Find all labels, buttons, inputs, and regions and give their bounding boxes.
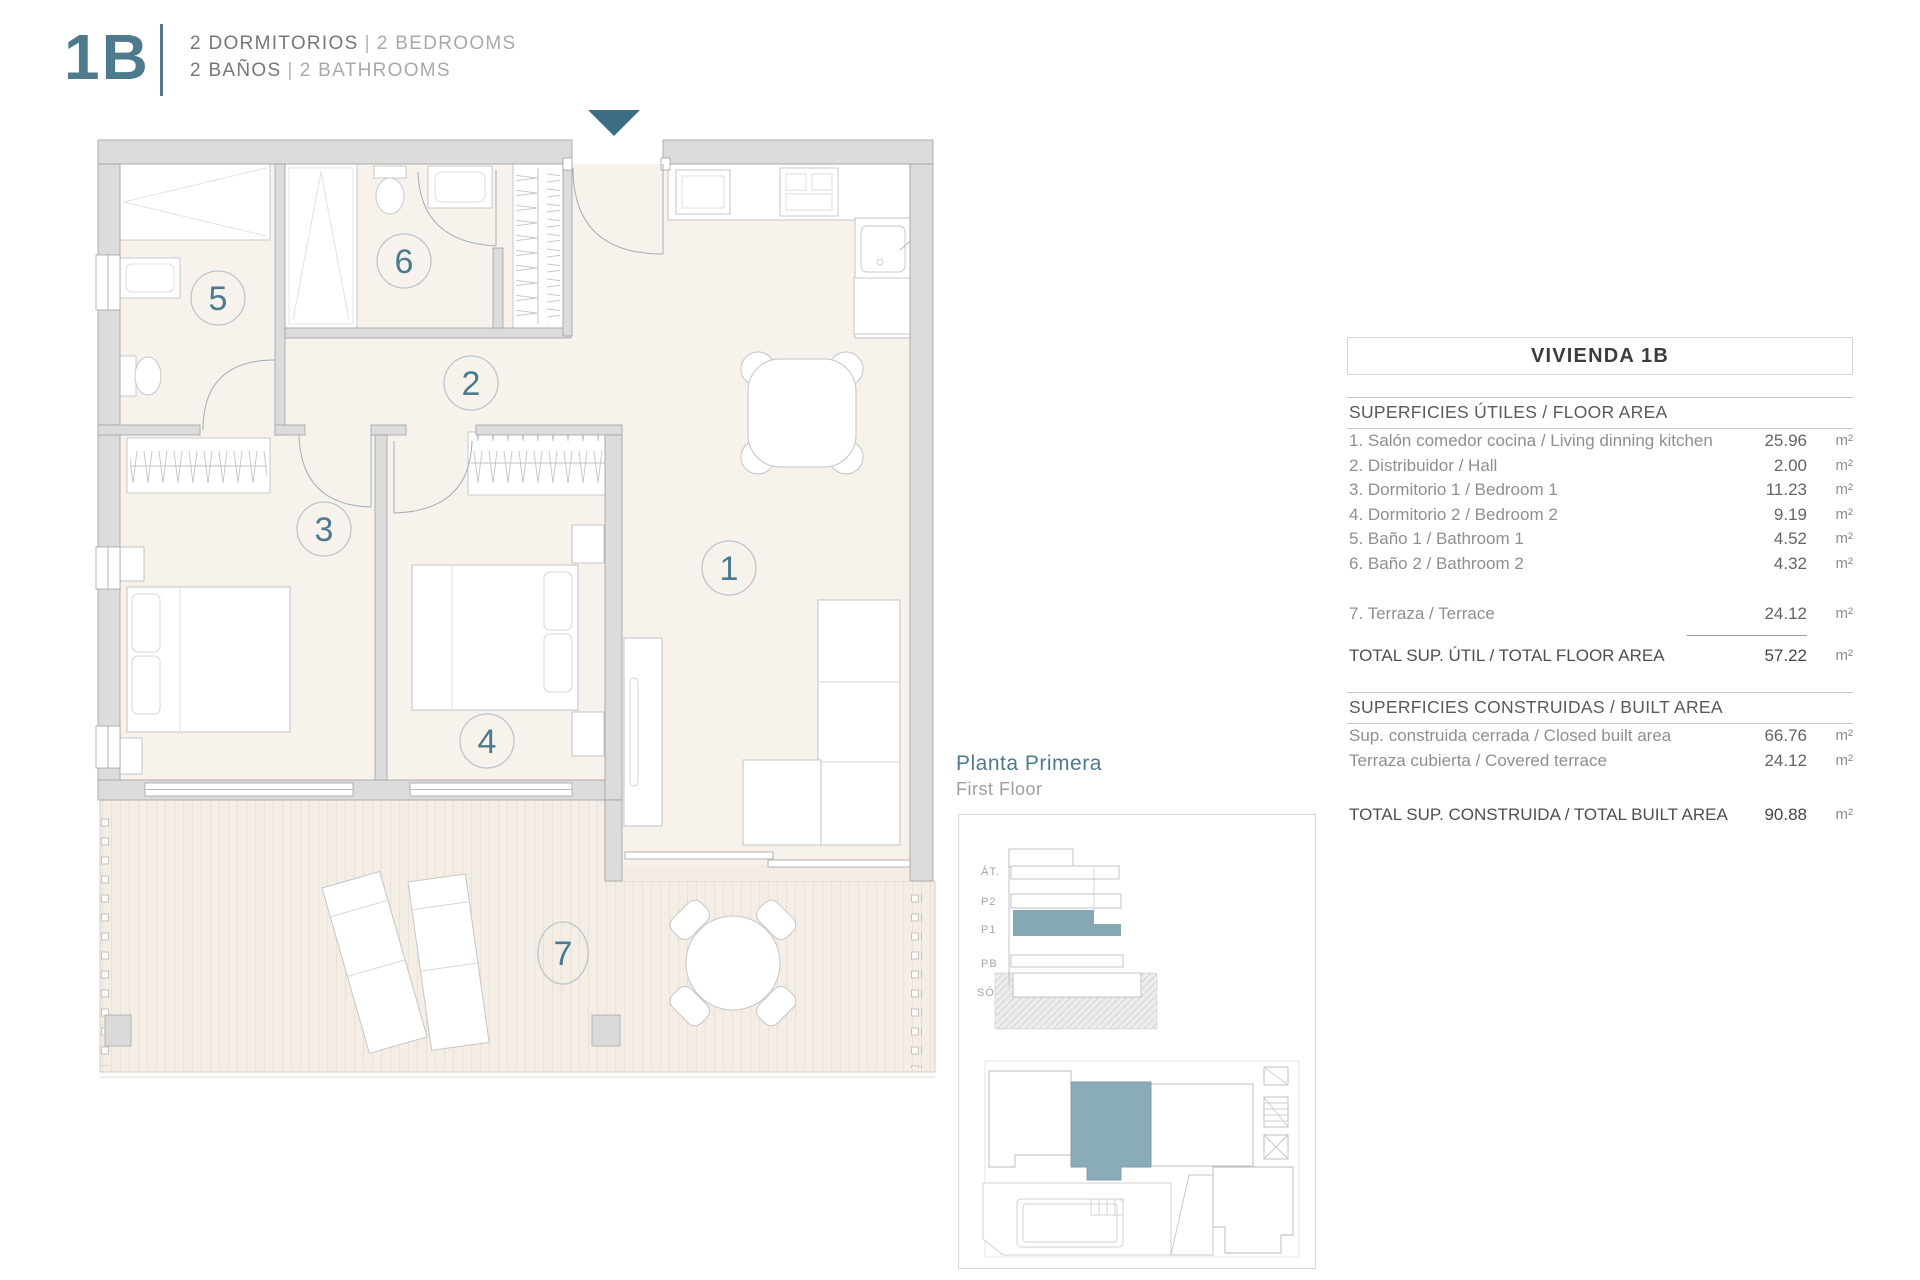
total-floor-row: TOTAL SUP. ÚTIL / TOTAL FLOOR AREA57.22m… (1347, 644, 1853, 669)
row-label: 6. Baño 2 / Bathroom 2 (1347, 552, 1737, 577)
separator: | (359, 33, 377, 54)
highlighted-unit (1071, 1082, 1151, 1180)
kitchen-cabinet (854, 278, 910, 334)
bathroom2-sink (428, 166, 492, 208)
separator: | (281, 60, 299, 81)
total-built-row: TOTAL SUP. CONSTRUIDA / TOTAL BUILT AREA… (1347, 803, 1853, 828)
floor-label-es: Planta Primera (956, 752, 1102, 776)
built-area-header: SUPERFICIES CONSTRUIDAS / BUILT AREA (1347, 693, 1853, 723)
row-unit: m² (1807, 454, 1853, 479)
bedroom2-wardrobe (468, 432, 610, 495)
row-value: 24.12 (1737, 602, 1807, 627)
table-row: 3. Dormitorio 1 / Bedroom 111.23m² (1347, 478, 1853, 503)
row-label: 7. Terraza / Terrace (1347, 602, 1737, 627)
svg-text:6: 6 (395, 243, 414, 281)
svg-text:PB: PB (981, 958, 998, 970)
row-unit: m² (1807, 552, 1853, 577)
bedrooms-line: 2 DORMITORIOS|2 BEDROOMS (190, 30, 517, 57)
row-label: 3. Dormitorio 1 / Bedroom 1 (1347, 478, 1737, 503)
location-diagram-box: ÁT. P2 P1 PB SÓT. (958, 814, 1316, 1269)
row-value: 4.52 (1737, 527, 1807, 552)
row-unit: m² (1807, 602, 1853, 627)
svg-text:3: 3 (315, 511, 334, 549)
location-diagram: ÁT. P2 P1 PB SÓT. (959, 815, 1315, 1268)
dining-table (741, 352, 863, 474)
row-unit: m² (1807, 644, 1853, 669)
header-subtitle: 2 DORMITORIOS|2 BEDROOMS 2 BAÑOS|2 BATHR… (190, 30, 517, 84)
sliding-door-pane (768, 860, 910, 867)
row-unit: m² (1807, 527, 1853, 552)
row-value: 66.76 (1737, 724, 1807, 749)
row-unit: m² (1807, 478, 1853, 503)
table-row: 1. Salón comedor cocina / Living dinning… (1347, 429, 1853, 454)
site-plan (983, 1061, 1299, 1257)
bathroom1-shower (120, 164, 270, 240)
tv-console (624, 638, 662, 826)
svg-text:2: 2 (462, 365, 481, 403)
row-value: 57.22 (1737, 644, 1807, 669)
entrance-arrow-icon (588, 110, 640, 136)
row-unit: m² (1807, 503, 1853, 528)
table-row: 4. Dormitorio 2 / Bedroom 29.19m² (1347, 503, 1853, 528)
table-row: Sup. construida cerrada / Closed built a… (1347, 724, 1853, 749)
bathrooms-en: 2 BATHROOMS (300, 60, 451, 81)
svg-text:1: 1 (720, 550, 739, 588)
row-value: 4.32 (1737, 552, 1807, 577)
row-label: 2. Distribuidor / Hall (1347, 454, 1737, 479)
row-label: 5. Baño 1 / Bathroom 1 (1347, 527, 1737, 552)
terrace-railing-right (911, 888, 922, 1068)
bathroom1-sink (120, 258, 180, 298)
header-divider (160, 24, 163, 96)
floor-label: Planta Primera First Floor (956, 752, 1102, 800)
floor-area-header: SUPERFICIES ÚTILES / FLOOR AREA (1347, 398, 1853, 428)
bathrooms-line: 2 BAÑOS|2 BATHROOMS (190, 57, 517, 84)
svg-text:ÁT.: ÁT. (981, 865, 1000, 878)
pool (1017, 1199, 1123, 1247)
svg-text:7: 7 (554, 935, 573, 973)
terrace-table (667, 897, 800, 1030)
bathroom2-toilet (374, 166, 406, 214)
row-value: 24.12 (1737, 749, 1807, 774)
row-label: TOTAL SUP. ÚTIL / TOTAL FLOOR AREA (1347, 644, 1737, 669)
floor-label-en: First Floor (956, 779, 1102, 800)
bathrooms-es: 2 BAÑOS (190, 60, 281, 81)
row-label: 1. Salón comedor cocina / Living dinning… (1347, 429, 1737, 454)
table-title: VIVIENDA 1B (1347, 337, 1853, 375)
row-value: 11.23 (1737, 478, 1807, 503)
row-unit: m² (1807, 724, 1853, 749)
elevator-icon (1264, 1135, 1288, 1159)
brochure-page: 1B 2 DORMITORIOS|2 BEDROOMS 2 BAÑOS|2 BA… (0, 0, 1920, 1280)
table-row-terrace: 7. Terraza / Terrace24.12m² (1347, 602, 1853, 627)
highlighted-floor (1013, 910, 1121, 936)
bedrooms-es: 2 DORMITORIOS (190, 33, 359, 54)
row-value: 9.19 (1737, 503, 1807, 528)
table-row: 2. Distribuidor / Hall2.00m² (1347, 454, 1853, 479)
threshold (622, 865, 910, 881)
row-value: 2.00 (1737, 454, 1807, 479)
area-table: VIVIENDA 1B SUPERFICIES ÚTILES / FLOOR A… (1347, 337, 1853, 828)
building-section: ÁT. P2 P1 PB SÓT. (977, 849, 1157, 1029)
row-unit: m² (1807, 803, 1853, 828)
svg-text:P1: P1 (981, 924, 996, 936)
unit-code: 1B (64, 20, 150, 94)
row-value: 90.88 (1737, 803, 1807, 828)
bedrooms-en: 2 BEDROOMS (377, 33, 517, 54)
bedroom1-wardrobe (127, 438, 270, 493)
table-row: 5. Baño 1 / Bathroom 14.52m² (1347, 527, 1853, 552)
floor-plan: 1 2 3 4 5 6 7 (80, 110, 940, 1085)
bathroom2-shower (285, 164, 357, 328)
row-label: Terraza cubierta / Covered terrace (1347, 749, 1737, 774)
terrace-pillar (592, 1015, 620, 1046)
row-unit: m² (1807, 749, 1853, 774)
svg-text:4: 4 (478, 723, 497, 761)
row-value: 25.96 (1737, 429, 1807, 454)
table-row: 6. Baño 2 / Bathroom 24.32m² (1347, 552, 1853, 577)
terrace-pillar (105, 1015, 131, 1046)
svg-text:5: 5 (209, 280, 228, 318)
row-label: TOTAL SUP. CONSTRUIDA / TOTAL BUILT AREA (1347, 803, 1737, 828)
stairs-icon (1264, 1067, 1288, 1127)
row-unit: m² (1807, 429, 1853, 454)
bathroom1-toilet (120, 356, 161, 396)
sliding-door-pane (625, 852, 773, 859)
row-label: 4. Dormitorio 2 / Bedroom 2 (1347, 503, 1737, 528)
svg-text:P2: P2 (981, 896, 996, 908)
entry-closet (513, 164, 563, 328)
row-label: Sup. construida cerrada / Closed built a… (1347, 724, 1737, 749)
table-row: Terraza cubierta / Covered terrace24.12m… (1347, 749, 1853, 774)
